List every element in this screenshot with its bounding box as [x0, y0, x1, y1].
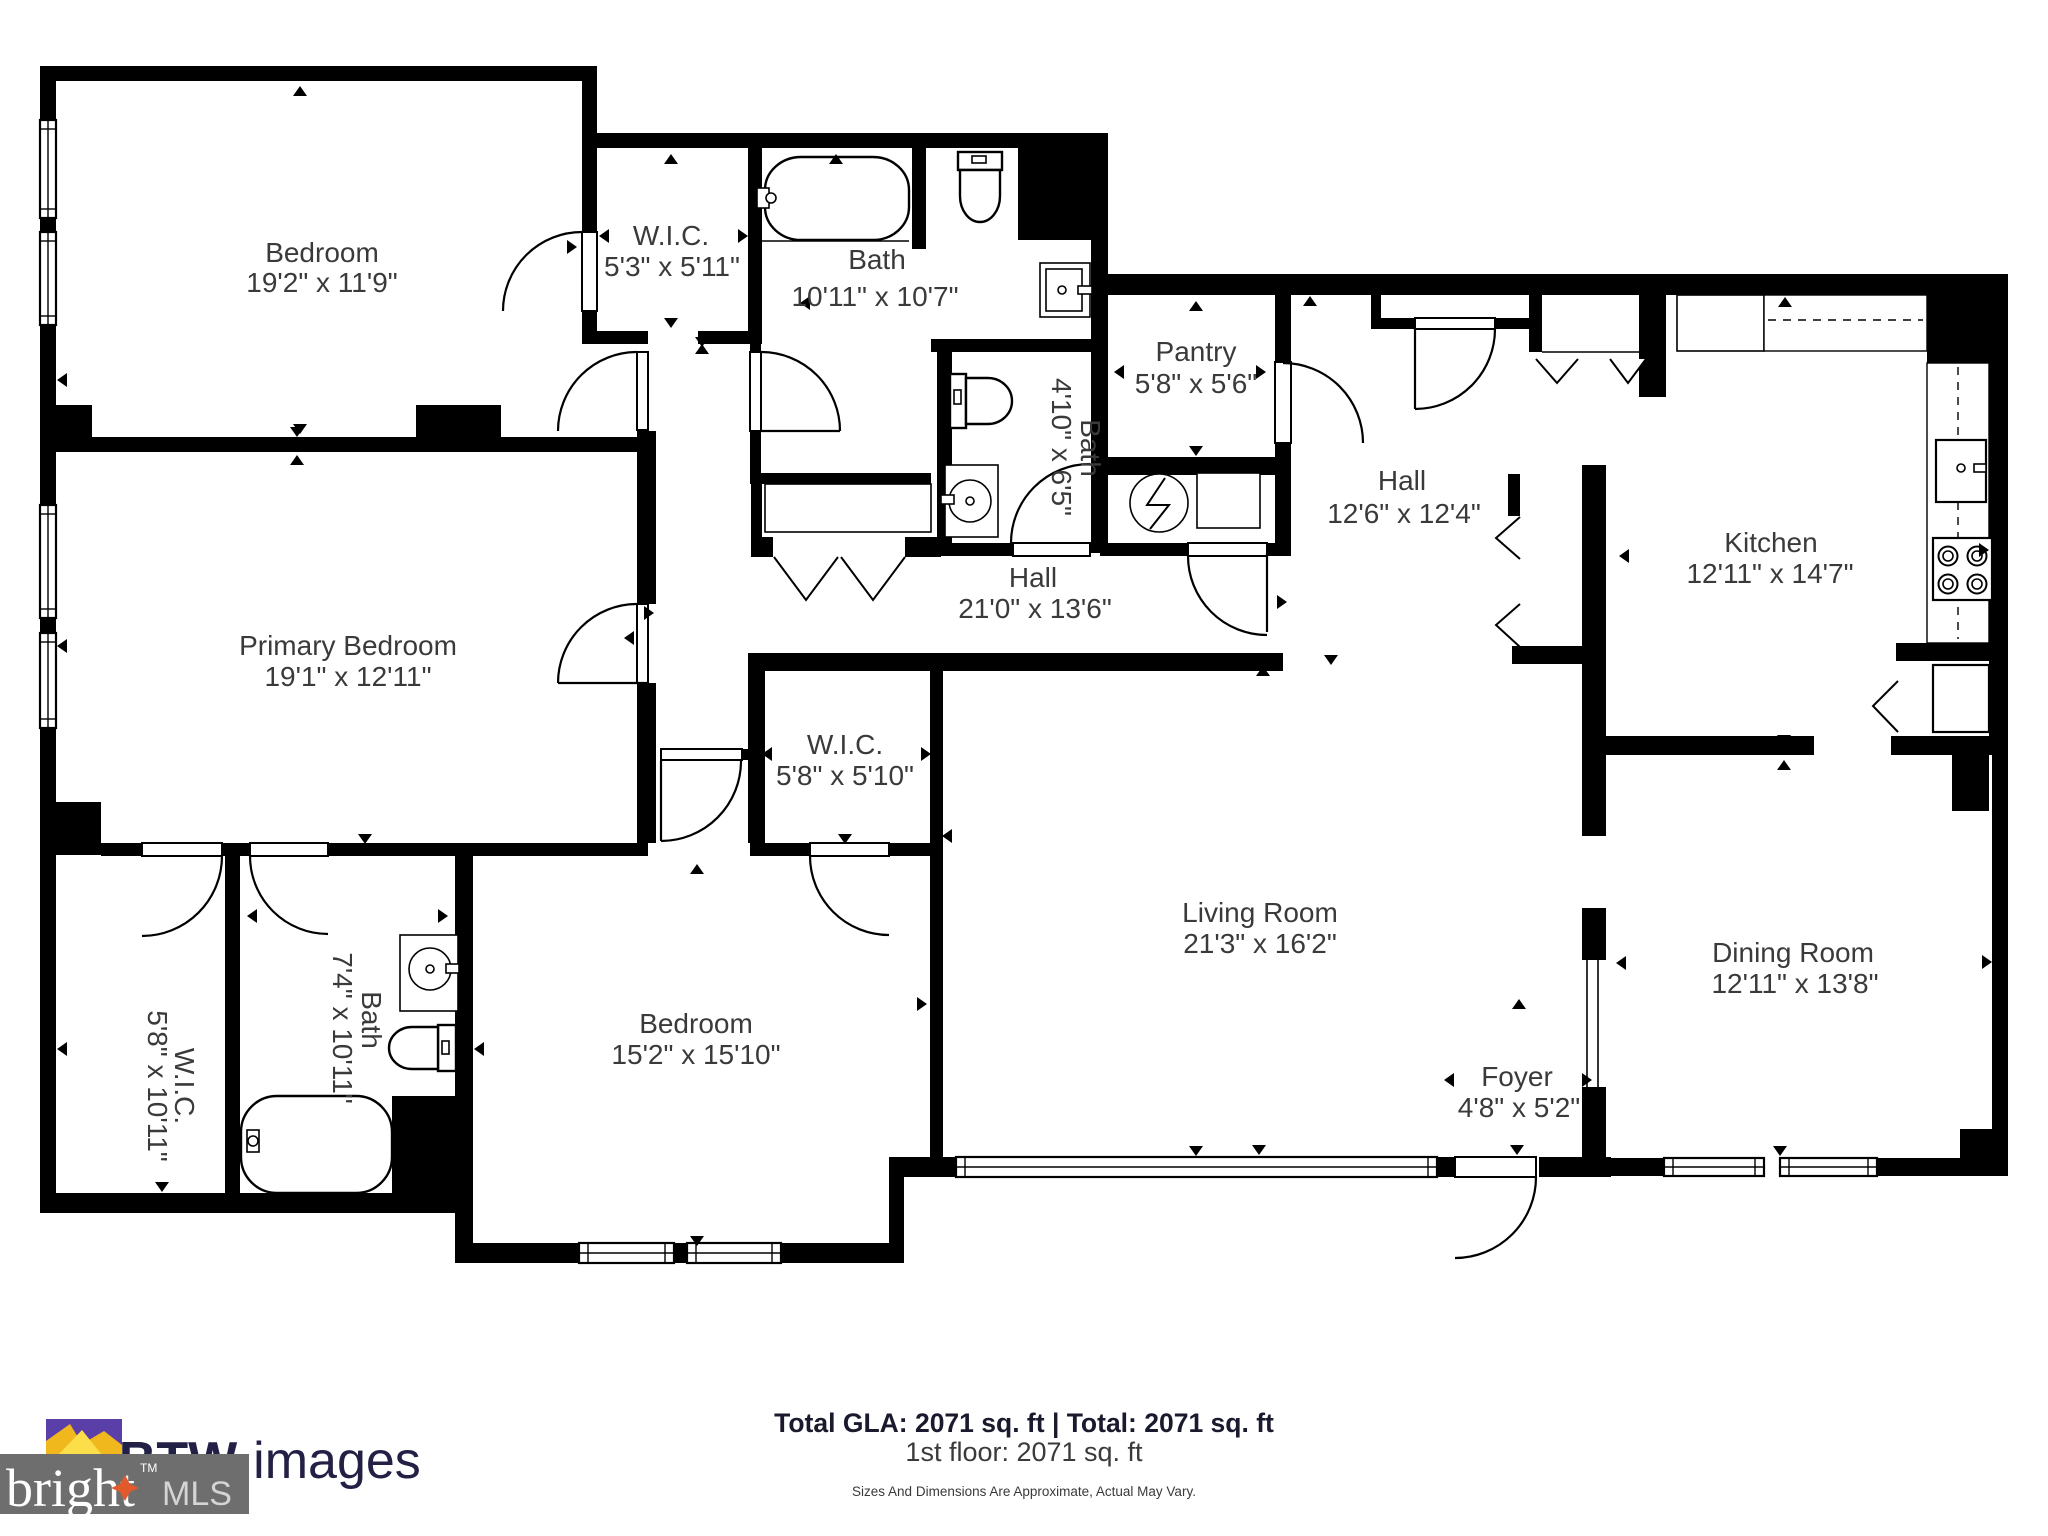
- svg-text:Bath: Bath: [1075, 419, 1106, 477]
- svg-text:12'6" x 12'4": 12'6" x 12'4": [1327, 498, 1481, 529]
- svg-text:Foyer: Foyer: [1481, 1061, 1553, 1092]
- svg-text:Bedroom: Bedroom: [639, 1008, 753, 1039]
- svg-text:MLS: MLS: [162, 1475, 232, 1513]
- svg-text:4'10" x 6'5": 4'10" x 6'5": [1046, 378, 1077, 516]
- svg-text:Primary Bedroom: Primary Bedroom: [239, 630, 457, 661]
- svg-text:Living Room: Living Room: [1182, 897, 1338, 928]
- svg-text:21'0" x 13'6": 21'0" x 13'6": [958, 593, 1112, 624]
- svg-text:Bath: Bath: [356, 991, 387, 1049]
- svg-text:TM: TM: [140, 1461, 157, 1475]
- svg-text:Dining Room: Dining Room: [1712, 937, 1874, 968]
- svg-text:Sizes And Dimensions Are Appro: Sizes And Dimensions Are Approximate, Ac…: [852, 1484, 1196, 1499]
- svg-text:19'1" x 12'11": 19'1" x 12'11": [264, 661, 431, 692]
- svg-text:7'4" x 10'11": 7'4" x 10'11": [327, 952, 358, 1103]
- svg-text:5'8" x 5'10": 5'8" x 5'10": [776, 760, 914, 791]
- svg-text:W.I.C.: W.I.C.: [807, 729, 883, 760]
- svg-text:4'8" x 5'2": 4'8" x 5'2": [1458, 1092, 1580, 1123]
- svg-text:21'3" x 16'2": 21'3" x 16'2": [1183, 928, 1337, 959]
- svg-text:W.I.C.: W.I.C.: [633, 220, 709, 251]
- svg-text:12'11" x 13'8": 12'11" x 13'8": [1711, 968, 1878, 999]
- svg-text:5'3" x 5'11": 5'3" x 5'11": [604, 251, 740, 282]
- svg-text:Total GLA: 2071 sq. ft | Total: Total GLA: 2071 sq. ft | Total: 2071 sq.…: [774, 1408, 1274, 1438]
- svg-text:Kitchen: Kitchen: [1724, 527, 1817, 558]
- svg-text:10'11" x 10'7": 10'11" x 10'7": [791, 281, 958, 312]
- svg-text:1st floor: 2071 sq. ft: 1st floor: 2071 sq. ft: [905, 1437, 1143, 1467]
- svg-text:Bedroom: Bedroom: [265, 237, 379, 268]
- svg-text:15'2" x 15'10": 15'2" x 15'10": [611, 1039, 780, 1070]
- svg-text:Hall: Hall: [1378, 465, 1426, 496]
- svg-text:5'8" x 5'6": 5'8" x 5'6": [1135, 368, 1257, 399]
- svg-text:Hall: Hall: [1009, 562, 1057, 593]
- svg-text:images: images: [253, 1432, 421, 1490]
- svg-text:Pantry: Pantry: [1156, 336, 1237, 367]
- svg-text:5'8" x 10'11": 5'8" x 10'11": [142, 1010, 173, 1161]
- svg-text:19'2" x 11'9": 19'2" x 11'9": [246, 267, 397, 298]
- svg-text:12'11" x 14'7": 12'11" x 14'7": [1686, 558, 1853, 589]
- svg-text:Bath: Bath: [848, 244, 906, 275]
